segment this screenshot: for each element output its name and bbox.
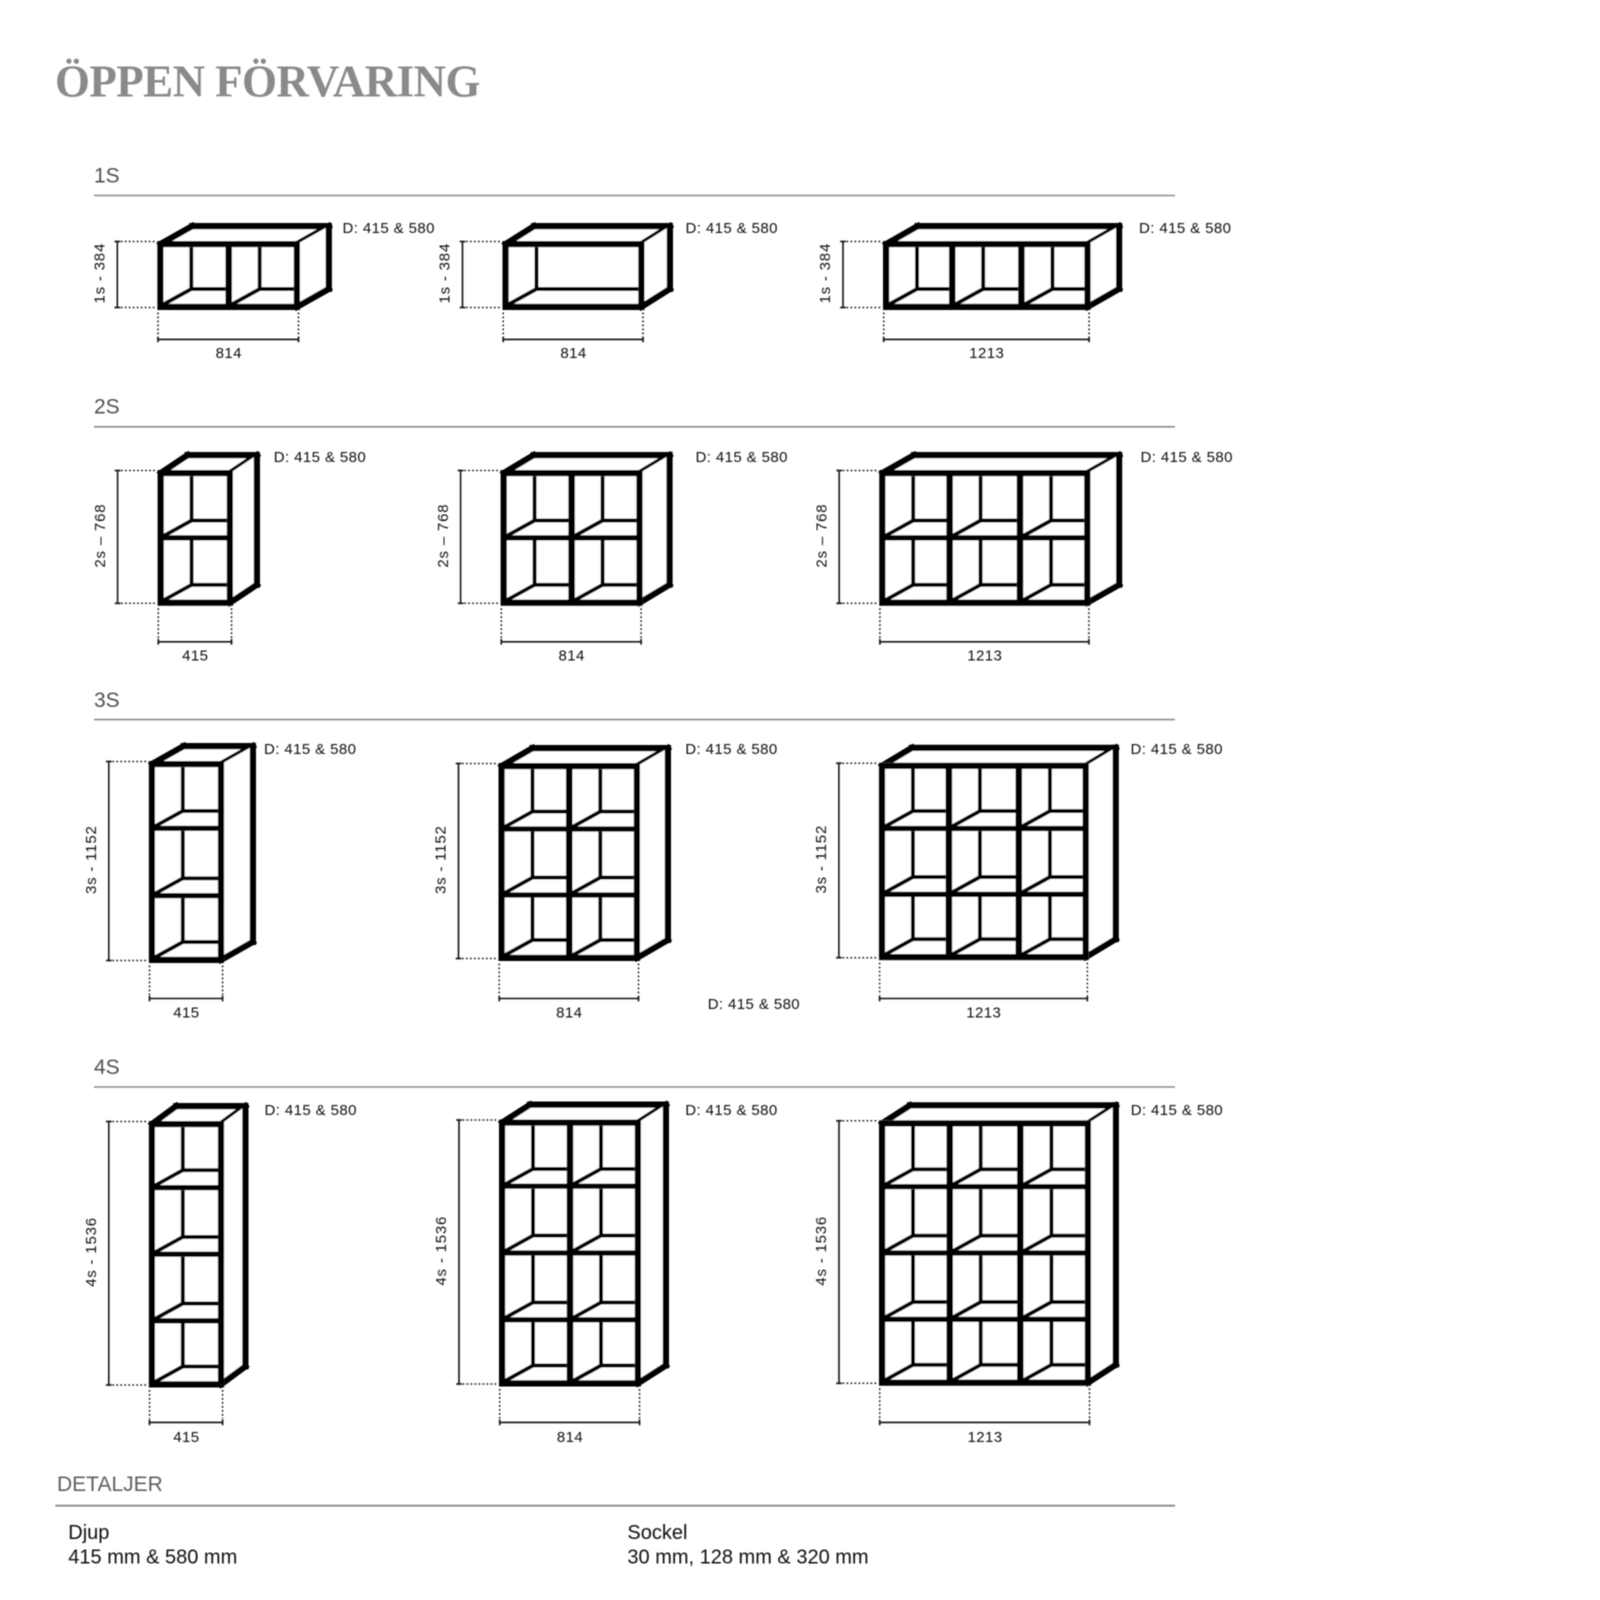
svg-text:415: 415 bbox=[182, 647, 208, 664]
svg-text:3s - 1152: 3s - 1152 bbox=[813, 825, 830, 894]
svg-text:D: 415 & 580: D: 415 & 580 bbox=[274, 449, 366, 466]
svg-text:1213: 1213 bbox=[969, 345, 1004, 362]
svg-text:D: 415 & 580: D: 415 & 580 bbox=[696, 449, 788, 466]
svg-text:4S: 4S bbox=[94, 1056, 120, 1079]
svg-text:2S: 2S bbox=[94, 396, 120, 419]
svg-text:1S: 1S bbox=[94, 164, 120, 187]
svg-text:DETALJER: DETALJER bbox=[57, 1473, 163, 1496]
svg-text:415 mm & 580 mm: 415 mm & 580 mm bbox=[68, 1547, 237, 1569]
svg-text:2s – 768: 2s – 768 bbox=[813, 504, 830, 568]
svg-text:D: 415 & 580: D: 415 & 580 bbox=[1141, 449, 1233, 466]
svg-text:2s – 768: 2s – 768 bbox=[435, 504, 452, 568]
svg-text:Sockel: Sockel bbox=[627, 1522, 687, 1544]
svg-text:4s - 1536: 4s - 1536 bbox=[813, 1216, 830, 1286]
svg-text:814: 814 bbox=[557, 1429, 583, 1446]
svg-text:1213: 1213 bbox=[968, 1429, 1003, 1446]
svg-text:D: 415 & 580: D: 415 & 580 bbox=[1131, 741, 1223, 758]
svg-text:ÖPPEN FÖRVARING: ÖPPEN FÖRVARING bbox=[55, 57, 480, 107]
svg-text:D: 415 & 580: D: 415 & 580 bbox=[685, 1102, 777, 1119]
svg-text:4s - 1536: 4s - 1536 bbox=[433, 1216, 450, 1286]
svg-text:1s - 384: 1s - 384 bbox=[92, 243, 109, 304]
svg-text:D: 415 & 580: D: 415 & 580 bbox=[265, 1102, 357, 1119]
svg-text:D: 415 & 580: D: 415 & 580 bbox=[686, 220, 778, 237]
svg-text:3S: 3S bbox=[94, 689, 120, 712]
svg-text:D: 415 & 580: D: 415 & 580 bbox=[264, 741, 356, 758]
svg-text:1213: 1213 bbox=[967, 647, 1002, 664]
svg-text:1s - 384: 1s - 384 bbox=[817, 243, 834, 304]
svg-text:D: 415 & 580: D: 415 & 580 bbox=[343, 220, 435, 237]
svg-text:3s - 1152: 3s - 1152 bbox=[83, 825, 100, 894]
svg-text:Djup: Djup bbox=[68, 1522, 109, 1544]
svg-text:2s – 768: 2s – 768 bbox=[92, 504, 109, 568]
svg-text:D: 415 & 580: D: 415 & 580 bbox=[1131, 1102, 1223, 1119]
svg-text:415: 415 bbox=[173, 1429, 199, 1446]
svg-text:814: 814 bbox=[558, 647, 584, 664]
svg-text:D: 415 & 580: D: 415 & 580 bbox=[685, 741, 777, 758]
svg-text:D: 415 & 580: D: 415 & 580 bbox=[1139, 220, 1231, 237]
svg-text:415: 415 bbox=[173, 1004, 199, 1021]
svg-text:1s - 384: 1s - 384 bbox=[437, 243, 454, 304]
svg-text:3s - 1152: 3s - 1152 bbox=[433, 825, 450, 894]
svg-text:814: 814 bbox=[216, 345, 242, 362]
svg-text:4s - 1536: 4s - 1536 bbox=[83, 1217, 100, 1287]
svg-text:30 mm, 128 mm & 320 mm: 30 mm, 128 mm & 320 mm bbox=[627, 1547, 868, 1569]
svg-text:D: 415 & 580: D: 415 & 580 bbox=[708, 996, 800, 1013]
svg-text:814: 814 bbox=[556, 1004, 582, 1021]
svg-text:814: 814 bbox=[560, 345, 586, 362]
svg-text:1213: 1213 bbox=[966, 1004, 1001, 1021]
